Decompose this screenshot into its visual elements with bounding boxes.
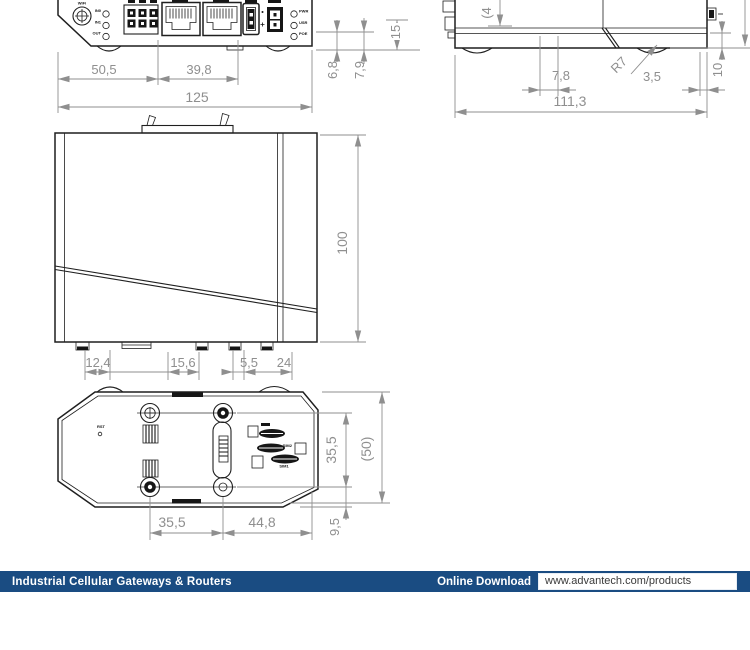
- led-poe-label: POE: [299, 31, 308, 36]
- antenna-label: WiFi: [78, 1, 86, 6]
- usb-port: [243, 0, 259, 35]
- status-leds-right: PWR USR POE: [291, 9, 309, 40]
- mounting-holes: [137, 404, 236, 497]
- antenna-connector: WiFi: [73, 1, 91, 26]
- front-panel-view: WiFi IN0 IN1 OUT: [58, 0, 420, 113]
- eth1-port: [203, 0, 241, 36]
- bottom-view: RST SIM2 SIM1: [58, 387, 390, 541]
- dim-front-mid-width: 39,8: [186, 62, 211, 77]
- side-view: (4 7,8 3,5 111,3 R7 10: [443, 0, 750, 118]
- status-leds-left: IN0 IN1 OUT: [93, 8, 110, 40]
- dim-bottom-total-height: (50): [358, 437, 374, 462]
- din-rail-clip: [142, 114, 233, 134]
- led-usr-label: USR: [299, 20, 308, 25]
- dim-front-h-small: 6,8: [325, 61, 340, 79]
- online-download-label: Online Download: [437, 576, 531, 588]
- left-side-view: 100 12,4 15,6 5,5 24: [55, 114, 366, 381]
- sim1-label: SIM1: [279, 464, 289, 469]
- dim-bottom-foot-offset: 9,5: [327, 518, 342, 536]
- dim-side-corner-radius: R7: [608, 54, 630, 76]
- led-in1-label: IN1: [95, 20, 102, 25]
- footer-download-group: Online Download www.advantech.com/produc…: [437, 573, 737, 590]
- vent-slots: [143, 425, 158, 477]
- dim-bottom-screw-right: 44,8: [248, 514, 275, 530]
- product-url: www.advantech.com/products: [538, 573, 737, 590]
- sma-button: [707, 8, 723, 20]
- sim-slots: SIM2 SIM1: [248, 423, 306, 469]
- sim2-label: SIM2: [283, 443, 293, 448]
- dim-side-depth: 111,3: [554, 93, 587, 109]
- dim-front-h-large: 15: [388, 25, 403, 39]
- footer-title: Industrial Cellular Gateways & Routers: [0, 576, 232, 588]
- dim-front-h-mid: 7,9: [352, 61, 367, 79]
- dim-main-height: 100: [334, 231, 350, 255]
- datasheet-page: WiFi IN0 IN1 OUT: [0, 0, 750, 650]
- bottom-tabs: [76, 342, 273, 350]
- footer-bar: Industrial Cellular Gateways & Routers O…: [0, 571, 750, 592]
- led-out-label: OUT: [93, 31, 102, 36]
- dim-front-left-width: 50,5: [91, 62, 116, 77]
- dim-side-edge: 10: [710, 63, 725, 77]
- dim-bottom-screw-v: 35,5: [323, 436, 339, 463]
- center-slot: [213, 422, 231, 478]
- left-view-dimensions: 100 12,4 15,6 5,5 24: [85, 135, 366, 380]
- dim-side-foot-left: 7,8: [552, 68, 570, 83]
- led-in0-label: IN0: [95, 8, 102, 13]
- dim-bottom-screw-h: 35,5: [158, 514, 185, 530]
- reset-button: RST: [97, 424, 106, 436]
- dim-main-seg2: 15,6: [170, 355, 195, 370]
- io-terminal-connector: [124, 0, 158, 34]
- dim-main-seg3: 5,5: [240, 355, 258, 370]
- dim-front-total-width: 125: [185, 89, 209, 105]
- led-pwr-label: PWR: [299, 9, 308, 14]
- dim-side-partial-height: (4: [479, 7, 494, 19]
- power-connector: [261, 0, 284, 32]
- dim-main-seg4: 24: [277, 355, 291, 370]
- front-view-dimensions: 50,5 39,8 125 6,8 7,9 15: [58, 18, 420, 113]
- dim-main-seg1: 12,4: [85, 355, 110, 370]
- eth0-port: [162, 0, 200, 36]
- dim-side-foot-right: 3,5: [643, 69, 661, 84]
- side-view-dimensions: (4 7,8 3,5 111,3 R7 10: [455, 0, 750, 118]
- reset-label: RST: [97, 424, 106, 429]
- dimensional-drawing: WiFi IN0 IN1 OUT: [0, 0, 750, 650]
- bottom-view-dimensions: 35,5 (50) 9,5 35,5 44,8: [150, 392, 390, 540]
